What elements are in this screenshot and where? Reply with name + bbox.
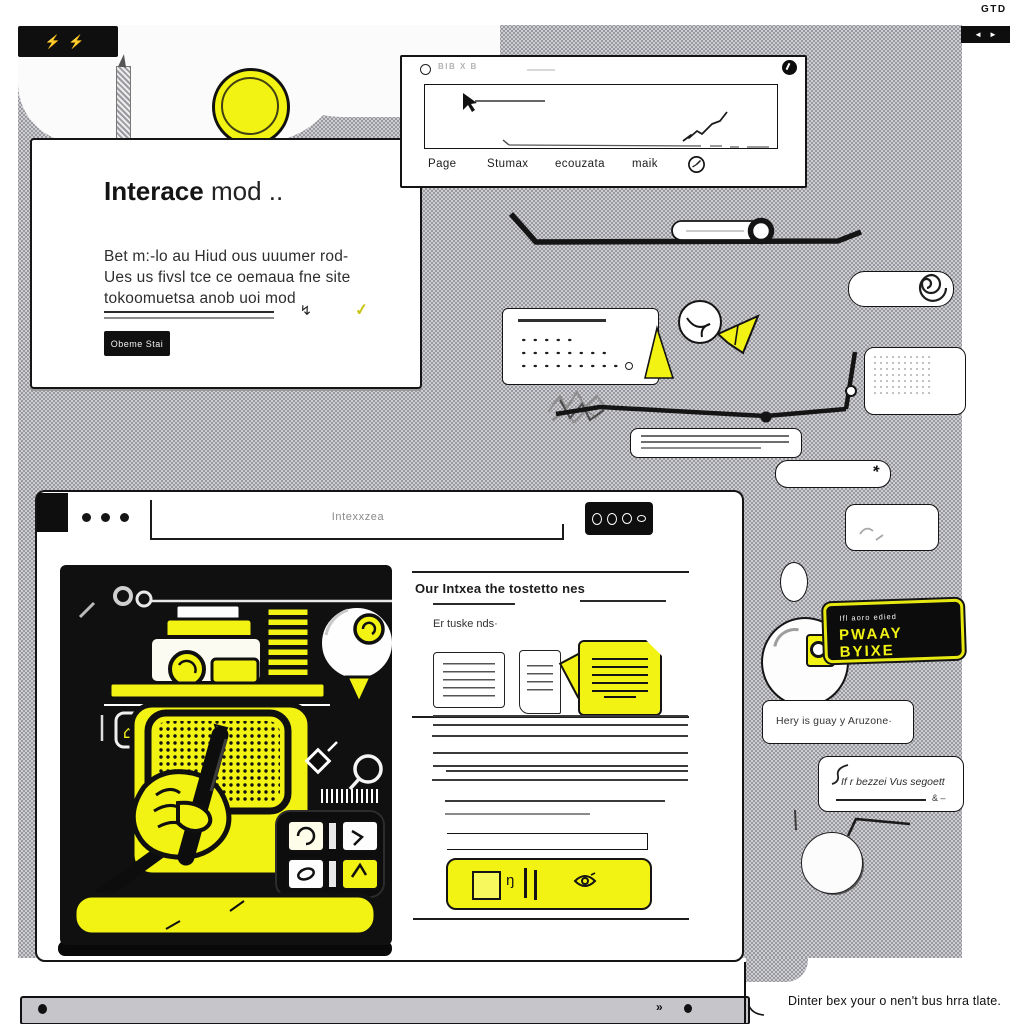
checkbox-icon[interactable] <box>472 871 501 900</box>
window-corner-block <box>37 493 68 532</box>
texture-card-dots <box>872 354 934 394</box>
question-bubble-text: Hery is guay y Aruzone· <box>776 715 913 727</box>
chart-plot-area <box>424 84 778 149</box>
window-header-text: BIB X B <box>438 62 478 71</box>
inline-input-outline[interactable] <box>447 833 648 850</box>
dot-row <box>518 349 610 357</box>
tab-maik[interactable]: maik <box>632 158 658 170</box>
bottom-strip <box>18 958 746 998</box>
reply-underline <box>836 799 926 801</box>
action-bar[interactable]: ŋ <box>446 858 652 910</box>
browser-toolbar-box <box>585 502 653 535</box>
toolbar-ring-icon[interactable] <box>592 513 602 525</box>
hero-body-line: Bet m:-lo au Hiud ous uuumer rod- <box>104 246 351 267</box>
stats-card-title-line <box>518 319 606 322</box>
arrow-left-icon[interactable]: ◄ <box>974 30 982 39</box>
scribble-card <box>845 504 939 551</box>
toolbar-ring-icon[interactable] <box>622 513 632 524</box>
article-subheading: Er tuske nds· <box>433 618 498 630</box>
base-platform <box>74 895 376 935</box>
footer-caption: Dinter bex your o nen't bus hrra tlate. <box>788 994 1020 1008</box>
trend-line <box>683 112 727 141</box>
footer-scrollbar[interactable] <box>20 996 750 1024</box>
dot-row <box>518 336 575 344</box>
comb-stripes <box>322 789 377 803</box>
doc-card-icon <box>433 652 505 708</box>
hero-body-line: Ues us fivsl tce ce oemaua fne site <box>104 267 351 288</box>
article-rule <box>412 571 689 573</box>
footer-chevron: » <box>656 1000 663 1014</box>
illustration-panel: ⌂ <box>60 565 392 945</box>
play-badge-big-text: PWAAY BYIXE <box>839 623 962 661</box>
hero-body: Bet m:-lo au Hiud ous uuumer rod- Ues us… <box>104 246 351 309</box>
check-doodle-icon: ✓ <box>354 299 369 320</box>
question-bubble: Hery is guay y Aruzone· <box>762 700 914 744</box>
text-line <box>433 765 688 767</box>
text-line <box>445 800 665 802</box>
notes-line <box>641 441 789 443</box>
traffic-dot[interactable] <box>101 513 110 522</box>
text-line <box>432 779 688 781</box>
window-dot-icon[interactable] <box>420 64 431 75</box>
doc-lines <box>604 696 636 698</box>
header-dash <box>527 69 555 71</box>
tab-ecouzata[interactable]: ecouzata <box>555 158 605 170</box>
eye-icon[interactable] <box>572 872 598 890</box>
reply-bubble-text: If r bezzei Vus segoett <box>841 776 945 788</box>
url-field-right-edge <box>562 524 564 538</box>
ornament-inner-ring <box>221 77 279 135</box>
small-egg <box>780 562 808 602</box>
doc-small-icon <box>519 650 561 714</box>
arrow-right-icon[interactable]: ► <box>989 30 997 39</box>
text-line <box>433 715 688 717</box>
window-badge-icon[interactable] <box>782 60 797 75</box>
tab-stumax[interactable]: Stumax <box>487 158 528 170</box>
keypad-icon <box>276 811 384 897</box>
url-text: Intexxzea <box>332 511 384 523</box>
text-line <box>433 724 688 726</box>
text-line <box>432 735 688 737</box>
hero-divider <box>104 311 274 319</box>
footer-divider <box>744 962 746 1024</box>
slider-bar-icon[interactable] <box>524 868 527 898</box>
baseline <box>509 145 701 146</box>
play-badge-small-text: Ifl aoro edied <box>839 610 960 623</box>
hero-title: Interace mod .. <box>104 176 283 207</box>
dot-ring <box>625 362 633 370</box>
device-illustration: ⌂ <box>60 565 392 945</box>
paragraph-lines <box>432 708 688 820</box>
doc-lines <box>443 663 495 699</box>
text-line <box>433 752 688 754</box>
doc-yellow-icon <box>578 640 662 716</box>
dot-row <box>518 362 621 370</box>
heading-underline <box>433 603 515 605</box>
nav-arrows[interactable]: ◄ ► <box>961 26 1010 43</box>
logo-marks-icon: ⚡⚡ <box>45 34 91 49</box>
notes-line <box>641 447 761 449</box>
hero-body-line: tokoomuetsa anob uoi mod <box>104 288 351 309</box>
heading-rule-right <box>580 600 666 602</box>
logo-badge[interactable]: ⚡⚡ <box>18 26 118 57</box>
reply-suffix: & – <box>932 793 946 803</box>
printer-icon <box>150 605 262 686</box>
text-line <box>446 770 688 772</box>
traffic-dot[interactable] <box>82 513 91 522</box>
hero-title-rest: mod .. <box>211 176 283 206</box>
slider-bar-icon[interactable] <box>534 870 537 900</box>
notes-line <box>641 435 789 437</box>
doc-lines <box>592 658 648 692</box>
sketch-circle <box>801 832 863 894</box>
gauge-icon[interactable] <box>687 155 706 174</box>
play-badge[interactable]: Ifl aoro edied PWAAY BYIXE <box>823 599 965 664</box>
text-line <box>445 813 590 815</box>
footer-dot <box>684 1004 692 1013</box>
cursor-arrow-icon <box>463 93 477 112</box>
sparkline-chart <box>425 85 777 148</box>
baseline-tick <box>503 140 509 145</box>
notes-field[interactable] <box>630 428 802 458</box>
toolbar-ring-icon[interactable] <box>607 513 617 525</box>
lamp-icon <box>320 606 392 703</box>
striped-stack-icon <box>268 609 308 676</box>
shelf <box>104 683 330 705</box>
doc-yellow-dogear <box>646 640 662 656</box>
doc-lines <box>527 665 553 691</box>
tab-page[interactable]: Page <box>428 158 456 170</box>
footer-dot <box>38 1004 47 1014</box>
poster-canvas: ⚡⚡ GTD ◄ ► Interace mod .. Bet m:-lo au … <box>0 0 1024 1024</box>
corner-code: GTD <box>981 4 1007 15</box>
hero-cta-button[interactable]: Obeme Stai <box>104 331 170 356</box>
hero-title-bold: Interace <box>104 176 204 206</box>
bolt-icon: ↯ <box>299 301 313 319</box>
toolbar-dot-icon[interactable] <box>637 515 646 522</box>
squiggle-mark: ŋ <box>506 872 514 889</box>
url-field[interactable]: Intexxzea <box>150 500 564 540</box>
spiral-pill[interactable] <box>848 271 954 307</box>
article-rule <box>413 918 689 920</box>
traffic-dot[interactable] <box>120 513 129 522</box>
article-heading: Our Intxea the tostetto nes <box>415 581 585 596</box>
magnifier-icon <box>350 756 381 789</box>
